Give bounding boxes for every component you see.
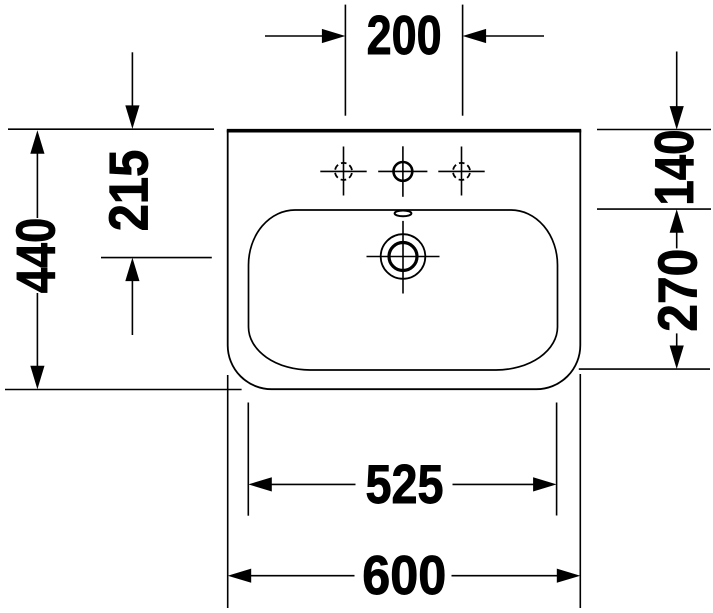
svg-text:140: 140 (644, 130, 705, 206)
svg-text:270: 270 (648, 249, 709, 332)
svg-text:600: 600 (362, 545, 446, 606)
svg-text:200: 200 (367, 5, 442, 66)
svg-text:215: 215 (98, 150, 159, 232)
svg-text:440: 440 (6, 218, 67, 294)
svg-text:525: 525 (366, 454, 444, 515)
